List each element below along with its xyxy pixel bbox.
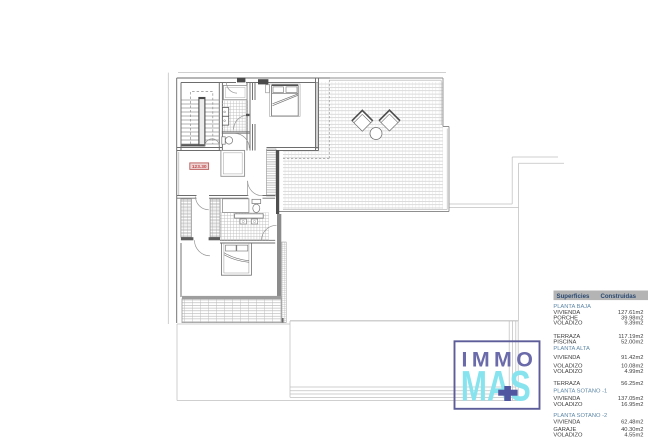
svg-text:16.95m2: 16.95m2 bbox=[621, 402, 643, 408]
svg-text:VIVIENDA: VIVIENDA bbox=[553, 420, 580, 426]
svg-text:PISCINA: PISCINA bbox=[553, 339, 576, 345]
svg-text:91.42m2: 91.42m2 bbox=[621, 355, 643, 361]
svg-text:TERRAZA: TERRAZA bbox=[553, 381, 580, 387]
svg-text:VOLADIZO: VOLADIZO bbox=[553, 432, 583, 438]
svg-text:62.48m2: 62.48m2 bbox=[621, 420, 643, 426]
svg-text:9.39m2: 9.39m2 bbox=[624, 321, 643, 327]
svg-text:PLANTA SOTANO -1: PLANTA SOTANO -1 bbox=[553, 389, 607, 395]
svg-text:Superficies: Superficies bbox=[557, 293, 590, 300]
svg-text:VOLADIZO: VOLADIZO bbox=[553, 402, 583, 408]
svg-text:123.30: 123.30 bbox=[192, 164, 207, 170]
svg-text:PLANTA ALTA: PLANTA ALTA bbox=[553, 346, 590, 352]
svg-text:52.00m2: 52.00m2 bbox=[621, 339, 643, 345]
svg-text:VIVIENDA: VIVIENDA bbox=[553, 355, 580, 361]
svg-text:4.55m2: 4.55m2 bbox=[624, 432, 643, 438]
svg-text:PLANTA BAJA: PLANTA BAJA bbox=[553, 304, 591, 310]
svg-text:PLANTA SOTANO -2: PLANTA SOTANO -2 bbox=[553, 413, 607, 419]
svg-text:VOLADIZO: VOLADIZO bbox=[553, 321, 583, 327]
svg-text:Construidas: Construidas bbox=[600, 293, 636, 300]
svg-text:MAS: MAS bbox=[461, 362, 531, 410]
svg-text:VOLADIZO: VOLADIZO bbox=[553, 369, 583, 375]
svg-text:56.25m2: 56.25m2 bbox=[621, 381, 643, 387]
svg-text:4.99m2: 4.99m2 bbox=[624, 369, 643, 375]
